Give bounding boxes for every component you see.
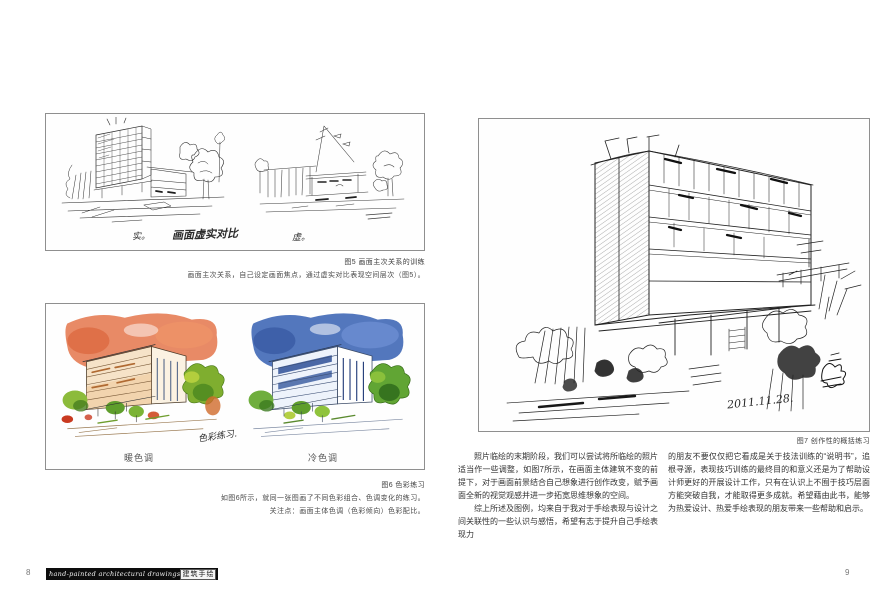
handwritten-note-contrast: 画面虚实对比 xyxy=(172,225,239,243)
body-text-column-1: 照片临绘的末期阶段，我们可以尝试将所临绘的照片适当作一些调整，如图7所示，在画面… xyxy=(458,450,658,541)
series-title-bar: hand-painted architectural drawings 建筑手绘 xyxy=(46,568,218,580)
series-title-english: hand-painted architectural drawings xyxy=(49,570,180,578)
body-paragraph-2: 综上所述及图例，均来自于我对于手绘表现与设计之间关联性的一些认识与感悟，希望有志… xyxy=(458,502,658,541)
label-warm-tone: 暖色调 xyxy=(124,451,154,464)
figure6-caption-line1: 如图6所示，就同一张图画了不同色彩组合、色调变化的练习。 xyxy=(65,493,425,504)
page-number-right: 9 xyxy=(845,568,849,577)
page-number-left: 8 xyxy=(26,568,30,577)
body-paragraph-1: 照片临绘的末期阶段，我们可以尝试将所临绘的照片适当作一些调整，如图7所示，在画面… xyxy=(458,450,658,502)
figure7-pen-sketch: 2011.11.28. xyxy=(478,118,870,432)
book-spread: 实。 画面虚实对比 虚。 图5 画面主次关系的训练 画面主次关系，自己设定画面焦… xyxy=(0,0,884,600)
figure6-caption-line2: 关注点：画面主体色调（色彩倾向）色彩配比。 xyxy=(65,506,425,517)
sketch-loose-building xyxy=(246,120,418,230)
figure6-color-pair: 色彩练习. 暖色调 冷色调 xyxy=(45,303,425,470)
figure5-caption-title: 图5 画面主次关系的训练 xyxy=(125,257,425,268)
figure5-sketch-pair: 实。 画面虚实对比 虚。 xyxy=(45,113,425,251)
figure7-caption-title: 图7 创作性的概括练习 xyxy=(670,436,870,447)
sketch-large-building xyxy=(479,119,869,431)
color-sketch-warm xyxy=(56,312,228,446)
series-title-chinese: 建筑手绘 xyxy=(180,569,216,580)
body-paragraph-2-continued: 的朋友不要仅仅把它看成是关于技法训练的“说明书”，追根寻源，表现技巧训练的最终目… xyxy=(668,450,870,515)
figure6-caption-title: 图6 色彩练习 xyxy=(225,480,425,491)
handwritten-note-void: 虚。 xyxy=(292,230,310,244)
sketch-detailed-building xyxy=(52,117,234,231)
figure5-caption-text: 画面主次关系，自己设定画面焦点，通过虚实对比表现空间层次（图5）。 xyxy=(65,270,425,281)
body-text-column-2: 的朋友不要仅仅把它看成是关于技法训练的“说明书”，追根寻源，表现技巧训练的最终目… xyxy=(668,450,870,515)
handwritten-note-solid: 实。 xyxy=(132,229,151,243)
color-sketch-cool xyxy=(242,312,414,446)
label-cool-tone: 冷色调 xyxy=(308,451,338,464)
